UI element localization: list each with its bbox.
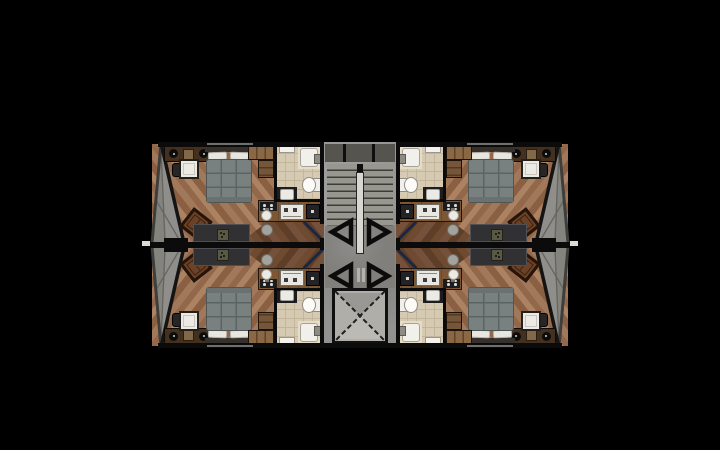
decor-item: [526, 330, 537, 341]
core-wall: [396, 264, 400, 348]
plant: [491, 229, 503, 241]
dark-appliance: [400, 204, 414, 219]
table-lamp: [169, 149, 178, 158]
mirror-cabinet: [279, 146, 295, 153]
bar-stool: [447, 224, 459, 236]
unit-top-right: [396, 142, 570, 244]
vanity-sink: [280, 189, 294, 200]
bar-stool: [261, 254, 273, 266]
bed: [468, 287, 514, 331]
bed: [468, 159, 514, 203]
tv-console: [470, 248, 527, 266]
tv-console: [193, 224, 250, 242]
tv-console: [470, 224, 527, 242]
dark-appliance: [306, 204, 320, 219]
closet: [446, 160, 462, 178]
plant: [217, 229, 229, 241]
table-lamp: [169, 332, 178, 341]
shower-head: [399, 326, 406, 336]
dining-table: [179, 159, 199, 179]
shower-head: [399, 154, 406, 164]
unit-bottom-left: [150, 246, 324, 348]
unit-top-left: [150, 142, 324, 244]
vanity-sink: [426, 290, 440, 301]
bar-stool: [261, 224, 273, 236]
decor-item: [183, 330, 194, 341]
elevator-cross: [335, 291, 385, 341]
window: [467, 143, 513, 145]
oven: [416, 270, 440, 286]
mirror-cabinet: [425, 146, 441, 153]
core-wall: [396, 142, 400, 224]
door-swing-triangle: [369, 221, 388, 243]
plant: [217, 249, 229, 261]
dining-table: [521, 159, 541, 179]
toilet: [404, 177, 418, 193]
vanity-sink: [426, 189, 440, 200]
bed: [206, 159, 252, 203]
toilet: [302, 297, 316, 313]
window: [207, 143, 253, 145]
toilet: [404, 297, 418, 313]
elevator-shaft: [332, 288, 388, 344]
floor-mark: [362, 268, 365, 282]
window: [207, 345, 253, 347]
dark-appliance: [306, 271, 320, 286]
kitchen-sink: [448, 210, 459, 221]
bar-stool: [447, 254, 459, 266]
plant: [491, 249, 503, 261]
unit-bottom-right: [396, 246, 570, 348]
table-lamp: [542, 149, 551, 158]
dining-table: [179, 311, 199, 331]
kitchen-sink: [261, 210, 272, 221]
door-swing-triangle: [332, 221, 351, 243]
tv-console: [193, 248, 250, 266]
dimension-tick: [142, 241, 150, 246]
dark-appliance: [400, 271, 414, 286]
core-wall: [320, 142, 324, 224]
building-core: [324, 142, 396, 348]
window: [467, 345, 513, 347]
closet: [258, 160, 274, 178]
toilet: [302, 177, 316, 193]
floor-plan-canvas: [0, 0, 720, 450]
kitchen-sink: [261, 269, 272, 280]
structural-column: [164, 238, 188, 252]
door-swing-triangle: [369, 265, 388, 287]
oven: [416, 204, 440, 220]
vanity-sink: [280, 290, 294, 301]
oven: [280, 204, 304, 220]
kitchen-sink: [448, 269, 459, 280]
oven: [280, 270, 304, 286]
closet: [258, 312, 274, 330]
floor-mark: [357, 268, 360, 282]
dimension-tick: [570, 241, 578, 246]
closet: [446, 312, 462, 330]
floor-plan: [150, 142, 570, 348]
exterior-wall: [324, 343, 396, 348]
dining-table: [521, 311, 541, 331]
structural-column: [532, 238, 556, 252]
core-wall: [320, 264, 324, 348]
door-swing-triangle: [332, 265, 351, 287]
table-lamp: [542, 332, 551, 341]
bed: [206, 287, 252, 331]
